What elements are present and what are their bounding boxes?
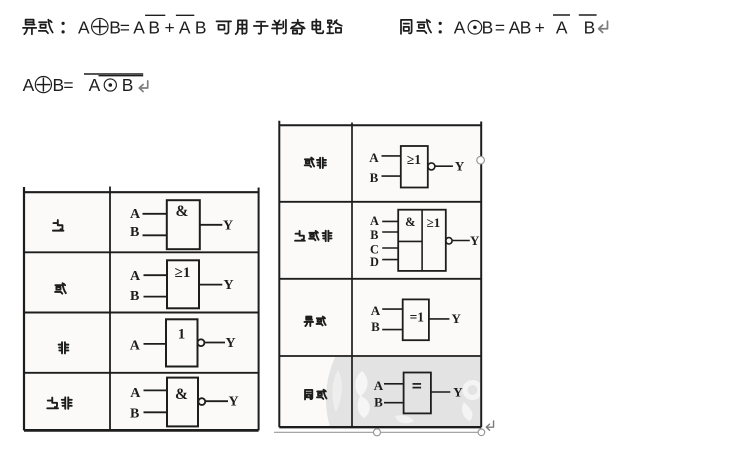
svg-text:≥1: ≥1 (427, 215, 441, 230)
svg-text:+: + (535, 17, 545, 37)
svg-text:A: A (369, 150, 379, 165)
svg-text:A: A (89, 75, 101, 95)
svg-text:&: & (176, 203, 189, 220)
svg-text:A: A (371, 303, 381, 318)
svg-text:A: A (130, 269, 141, 284)
svg-text:A: A (130, 386, 141, 401)
svg-text:Y: Y (452, 311, 462, 326)
svg-text:B: B (148, 17, 160, 37)
svg-text:B: B (482, 17, 494, 37)
svg-text:A: A (133, 17, 145, 37)
svg-text:B: B (130, 407, 139, 422)
svg-text:A: A (370, 214, 379, 228)
svg-text:≥1: ≥1 (407, 152, 421, 167)
svg-text:Y: Y (228, 395, 238, 410)
svg-text:A: A (509, 17, 521, 37)
svg-text:Y: Y (455, 159, 465, 174)
svg-text:A: A (454, 17, 466, 37)
svg-text:A: A (130, 207, 141, 222)
svg-text:&: & (175, 386, 188, 403)
svg-text:=: = (120, 17, 130, 37)
svg-text:B: B (374, 394, 383, 409)
svg-text:A: A (78, 17, 90, 37)
svg-text:=: = (495, 17, 505, 37)
svg-text:B: B (53, 75, 65, 95)
svg-text:Y: Y (223, 278, 233, 293)
svg-text:B: B (122, 75, 134, 95)
svg-text:&: & (405, 215, 415, 229)
svg-text:Y: Y (223, 218, 233, 233)
svg-text:B: B (370, 170, 379, 185)
svg-text:B: B (195, 17, 207, 37)
svg-text:≥1: ≥1 (175, 265, 191, 281)
svg-text:A: A (130, 339, 141, 354)
svg-text:Y: Y (453, 384, 463, 399)
svg-text:B: B (520, 17, 532, 37)
svg-text:A: A (374, 378, 384, 393)
svg-text:Y: Y (470, 233, 480, 248)
svg-text:=1: =1 (410, 310, 425, 325)
svg-text:D: D (370, 255, 379, 269)
svg-text:+: + (165, 17, 175, 37)
svg-text:B: B (130, 289, 139, 304)
svg-text:A: A (556, 17, 568, 37)
svg-text:B: B (130, 225, 139, 240)
svg-text:=: = (63, 75, 73, 95)
svg-text:A: A (179, 17, 191, 37)
svg-text:A: A (23, 75, 35, 95)
svg-text:B: B (584, 17, 596, 37)
svg-text:B: B (371, 319, 380, 334)
svg-text:1: 1 (178, 327, 186, 343)
svg-text:Y: Y (225, 336, 235, 351)
svg-text:B: B (370, 228, 378, 242)
